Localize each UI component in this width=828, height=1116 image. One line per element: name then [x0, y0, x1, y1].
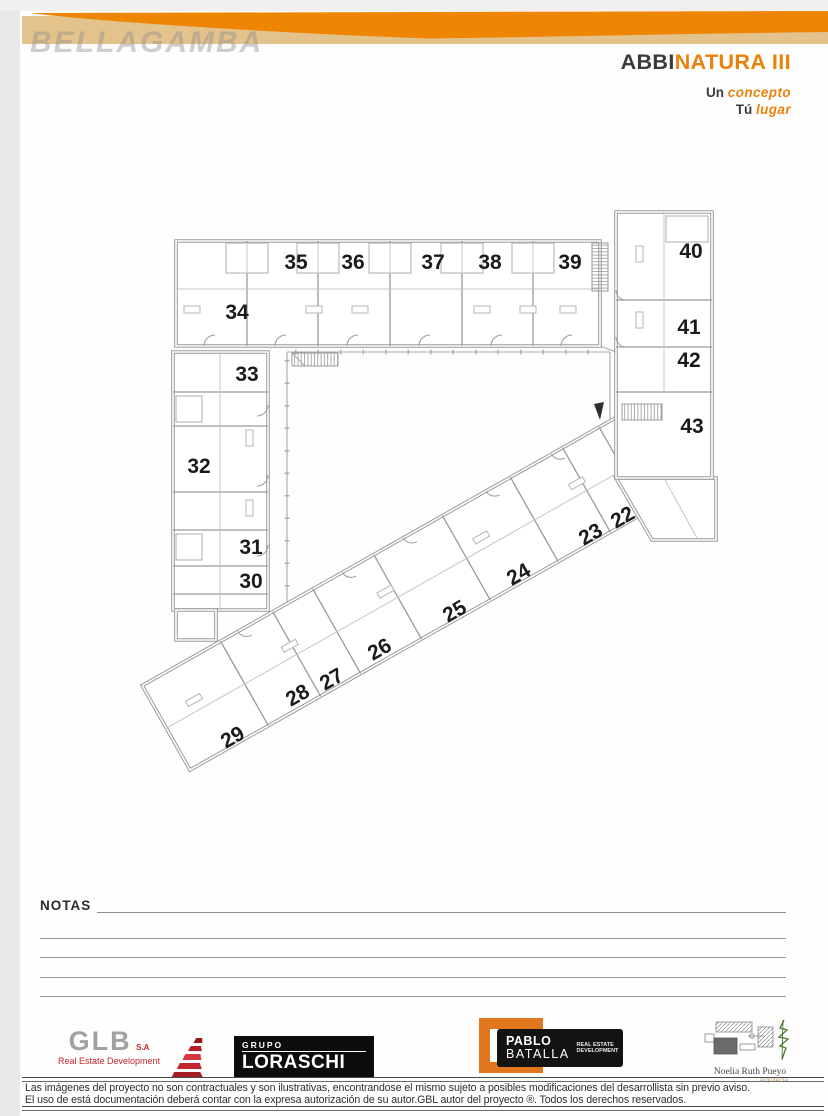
batalla-tag-2: DEVELOPMENT: [577, 1048, 619, 1054]
unit-label-24: 24: [503, 559, 535, 591]
notes-line: [40, 977, 786, 978]
unit-label-27: 27: [316, 664, 348, 696]
brochure-page: BELLAGAMBA ABBINATURA III Un concepto Tú…: [0, 0, 828, 1116]
unit-label-33: 33: [235, 363, 258, 387]
unit-label-26: 26: [364, 634, 396, 666]
disclaimer-line-1: Las imágenes del proyecto no son contrac…: [25, 1083, 823, 1095]
project-title-dark: ABBI: [621, 50, 675, 74]
unit-label-31: 31: [239, 536, 262, 560]
notes-line: [97, 911, 786, 913]
watermark-text: BELLAGAMBA: [30, 26, 263, 60]
unit-label-39: 39: [558, 251, 581, 275]
disclaimer-line-2: El uso de está documentación deberá cont…: [25, 1095, 823, 1107]
taglines: Un concepto Tú lugar: [621, 84, 791, 118]
tagline-2: Tú lugar: [621, 101, 791, 118]
glb-subtitle: Real Estate Development: [58, 1056, 160, 1066]
notes-line: [40, 996, 786, 997]
tagline-2-orange: lugar: [756, 102, 791, 117]
unit-label-36: 36: [341, 251, 364, 275]
unit-label-38: 38: [478, 251, 501, 275]
loraschi-logo: GRUPO LORASCHI: [234, 1036, 374, 1078]
unit-label-29: 29: [217, 722, 249, 754]
tagline-1-orange: concepto: [728, 85, 791, 100]
tagline-2-dark: Tú: [736, 102, 753, 117]
unit-label-25: 25: [439, 596, 471, 628]
glb-suffix: S.A: [136, 1043, 149, 1052]
batalla-logo: PABLO BATALLA REAL ESTATE DEVELOPMENT: [497, 1029, 623, 1067]
notes-line: [40, 957, 786, 958]
notes-label: NOTAS: [40, 898, 97, 913]
batalla-last-name: BATALLA: [506, 1048, 570, 1061]
notes-section: NOTAS: [40, 898, 786, 913]
pueyo-sketch-icon: [702, 1019, 798, 1061]
unit-label-42: 42: [677, 349, 700, 373]
unit-label-41: 41: [677, 316, 700, 340]
header-title-block: ABBINATURA III Un concepto Tú lugar: [621, 50, 791, 118]
glb-building-icon: [166, 1028, 212, 1078]
unit-label-37: 37: [421, 251, 444, 275]
unit-label-35: 35: [284, 251, 307, 275]
loraschi-group-label: GRUPO: [242, 1040, 366, 1052]
notes-line: [40, 938, 786, 939]
unit-label-32: 32: [187, 455, 210, 479]
glb-name: GLB: [69, 1026, 132, 1056]
tagline-1-dark: Un: [706, 85, 724, 100]
project-title: ABBINATURA III: [621, 50, 791, 75]
unit-label-34: 34: [225, 301, 248, 325]
unit-label-40: 40: [679, 240, 702, 264]
tagline-1: Un concepto: [621, 84, 791, 101]
scan-margin-left: [0, 0, 20, 1116]
unit-label-23: 23: [575, 519, 607, 551]
scan-margin-top: [0, 0, 828, 11]
unit-label-22: 22: [607, 502, 639, 534]
disclaimer: Las imágenes del proyecto no son contrac…: [25, 1083, 823, 1106]
divider-rule: [22, 1106, 824, 1111]
pueyo-name: Noelia Ruth Pueyo: [698, 1067, 802, 1077]
glb-logo: GLB S.A Real Estate Development: [58, 1028, 212, 1078]
unit-label-43: 43: [680, 415, 703, 439]
loraschi-name: LORASCHI: [242, 1053, 366, 1073]
unit-label-30: 30: [239, 570, 262, 594]
pueyo-logo: Noelia Ruth Pueyo arquitecta: [698, 1019, 802, 1084]
unit-label-28: 28: [282, 680, 314, 712]
project-title-orange: NATURA III: [675, 50, 791, 74]
unit-number-layer: 3435363738394041424333323130292827262524…: [0, 0, 828, 1116]
